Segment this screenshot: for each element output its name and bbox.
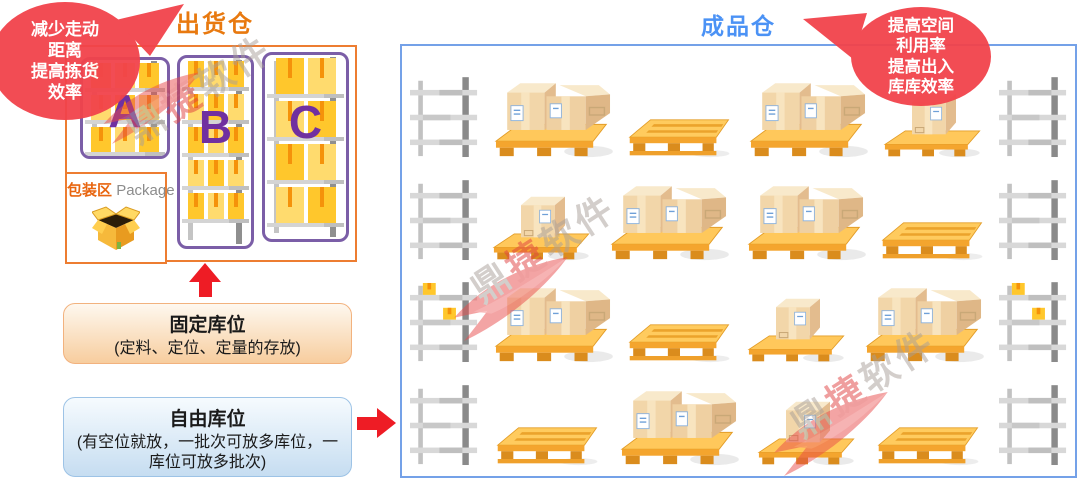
- arrow-stem: [199, 282, 212, 297]
- carton-box-icon: [276, 58, 304, 94]
- shelf-bar: [85, 152, 165, 156]
- carton-box-icon: [228, 61, 244, 87]
- shelf-bar: [182, 87, 249, 91]
- callout-line: 提高空间: [888, 16, 954, 36]
- shelf-row: [180, 160, 251, 186]
- shelf-bar: [182, 219, 249, 223]
- bubble-tail: [114, 2, 184, 58]
- shelf-row: [180, 193, 251, 219]
- arrow-head: [189, 263, 221, 282]
- package-area-label: 包装区 Package: [67, 179, 165, 200]
- fixed-location-desc: (定料、定位、定量的存放): [72, 339, 343, 359]
- bubble-tail: [801, 11, 871, 67]
- empty-pallet-icon: [628, 118, 732, 158]
- callout-line: 库库效率: [888, 77, 954, 97]
- pallet-double-box-icon: [618, 380, 740, 466]
- shelf-row: [265, 187, 346, 223]
- fixed-location-title: 固定库位: [64, 310, 351, 337]
- fixed-location-card: 固定库位 (定料、定位、定量的存放): [63, 303, 352, 364]
- package-area-label-en: Package: [116, 182, 174, 199]
- storage-rack-icon: [999, 77, 1067, 158]
- empty-pallet-icon: [628, 323, 732, 363]
- carton-box-icon: [308, 144, 336, 180]
- package-area-label-cn: 包装区: [67, 182, 112, 199]
- shelf-bar: [267, 180, 344, 184]
- pallet-double-box-icon: [747, 72, 869, 158]
- carton-box-icon: [188, 61, 204, 87]
- free-location-title: 自由库位: [64, 404, 351, 431]
- shelf-bar: [182, 186, 249, 190]
- free-location-card: 自由库位 (有空位就放，一批次可放多库位，一库位可放多批次): [63, 397, 352, 477]
- warehouse-row: [410, 263, 1067, 363]
- callout-line: 提高拣货: [31, 61, 99, 82]
- arrow-up-icon: [188, 263, 222, 297]
- zone-letter-c: C: [265, 95, 346, 149]
- callout-line: 效率: [48, 82, 82, 103]
- zone-letter-b: B: [180, 100, 251, 154]
- empty-pallet-icon: [881, 221, 985, 261]
- carton-box-icon: [188, 193, 204, 219]
- carton-box-icon: [208, 193, 224, 219]
- finished-warehouse-title: 成品仓: [701, 7, 776, 41]
- carton-box-icon: [276, 144, 304, 180]
- callout-line: 提高出入: [888, 57, 954, 77]
- pallet-double-box-icon: [492, 277, 614, 363]
- callout-line: 利用率: [896, 36, 946, 56]
- storage-rack-icon: [999, 180, 1067, 261]
- warehouse-diagram: 减少走动 距离 提高拣货 效率 出货仓 成品仓 提高空间 利用率 提高出入 库库…: [0, 0, 1080, 481]
- callout-space-utilization: 提高空间 利用率 提高出入 库库效率: [851, 7, 991, 106]
- arrow-right-icon: [357, 408, 396, 438]
- carton-box-icon: [308, 58, 336, 94]
- callout-line: 减少走动: [31, 19, 99, 40]
- free-location-desc: (有空位就放，一批次可放多库位，一库位可放多批次): [72, 433, 343, 473]
- package-area: 包装区 Package: [65, 172, 167, 264]
- carton-box-icon: [228, 193, 244, 219]
- warehouse-row: [410, 161, 1067, 261]
- carton-box-icon: [208, 61, 224, 87]
- storage-rack-icon: [410, 77, 478, 158]
- carton-box-icon: [308, 187, 336, 223]
- pallet-double-box-icon: [608, 175, 730, 261]
- finished-grid: [410, 58, 1067, 466]
- pallet-double-box-icon: [745, 175, 867, 261]
- carton-box-icon: [188, 160, 204, 186]
- finished-warehouse-panel: [400, 44, 1077, 478]
- zone-b: B: [177, 55, 254, 249]
- shelf-row: [180, 61, 251, 87]
- arrow-stem: [357, 417, 377, 430]
- empty-pallet-icon: [877, 426, 981, 466]
- shelf-row: [265, 144, 346, 180]
- arrow-head: [377, 408, 396, 438]
- pallet-single-box-icon: [757, 400, 859, 466]
- pallet-double-box-icon: [863, 277, 985, 363]
- carton-box-icon: [276, 187, 304, 223]
- shelf-row: [265, 58, 346, 94]
- open-box-icon: [91, 204, 141, 252]
- shelf-bar: [267, 223, 344, 227]
- storage-rack-icon: [410, 180, 478, 261]
- carton-box-icon: [228, 160, 244, 186]
- pallet-single-box-icon: [492, 195, 594, 261]
- storage-rack-icon: [999, 385, 1067, 466]
- empty-pallet-icon: [496, 426, 600, 466]
- shipping-warehouse-title: 出货仓: [176, 4, 254, 39]
- pallet-double-box-icon: [492, 72, 614, 158]
- storage-rack-with-boxes-icon: [999, 282, 1067, 363]
- storage-rack-icon: [410, 385, 478, 466]
- callout-line: 距离: [48, 40, 82, 61]
- pallet-single-box-icon: [747, 297, 849, 363]
- warehouse-row: [410, 366, 1067, 466]
- storage-rack-with-boxes-icon: [410, 282, 478, 363]
- zone-c: C: [262, 52, 349, 242]
- carton-box-icon: [208, 160, 224, 186]
